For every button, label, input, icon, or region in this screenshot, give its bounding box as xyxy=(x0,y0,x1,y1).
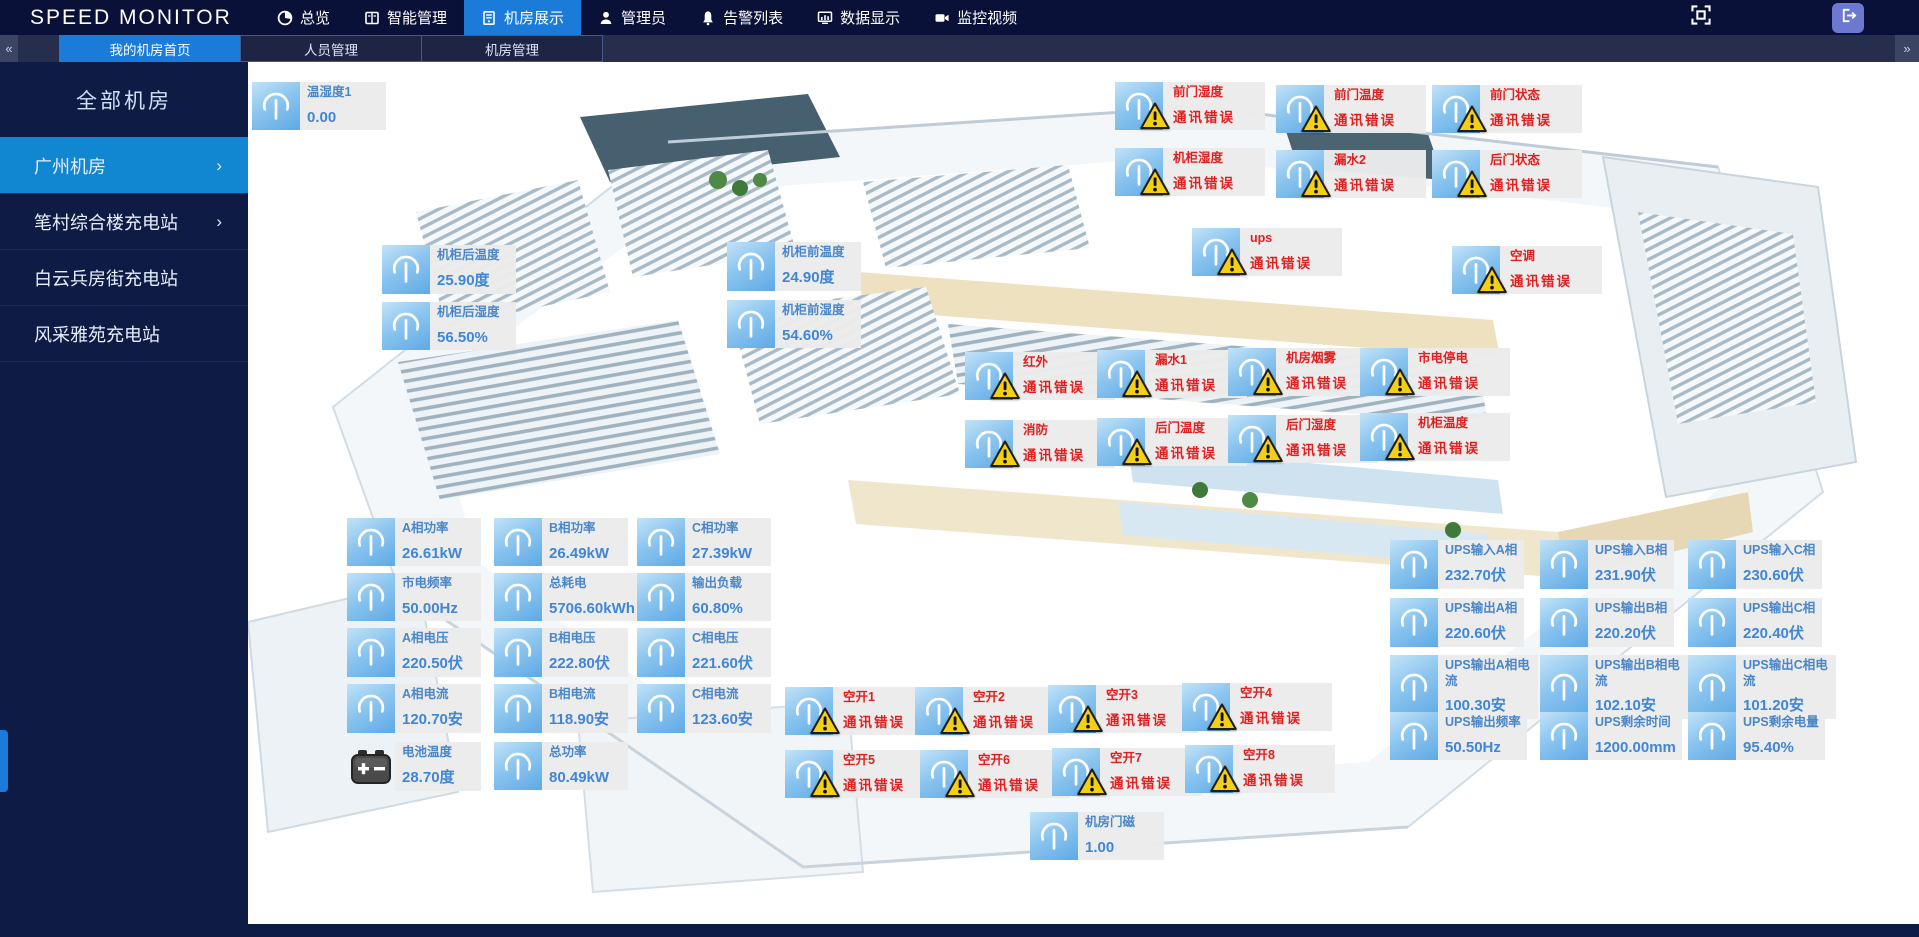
sensor-badge-body: 前门温度通讯错误 xyxy=(1324,85,1426,133)
tab-label: 我的机房首页 xyxy=(110,39,191,59)
fullscreen-icon xyxy=(1690,4,1712,31)
sidebar-item-label: 广州机房 xyxy=(34,153,106,179)
sensor-value: 1200.00mm xyxy=(1595,739,1676,756)
sensor-value: 1.00 xyxy=(1085,839,1158,856)
data-display-icon xyxy=(817,10,833,26)
warning-icon xyxy=(1477,266,1507,293)
topbar-right xyxy=(1688,0,1919,35)
sensor-badge[interactable]: 输出负载60.80% xyxy=(637,573,771,621)
sensor-badge-body: A相电压220.50伏 xyxy=(395,628,481,677)
sensor-badge-body: UPS剩余时间1200.00mm xyxy=(1588,712,1682,760)
sensor-badge-body: UPS输出C相220.40伏 xyxy=(1736,598,1822,647)
gauge-icon xyxy=(1390,540,1438,589)
nav-item-data-display[interactable]: 数据显示 xyxy=(800,0,917,35)
admin-icon xyxy=(598,10,614,26)
warning-icon xyxy=(1217,248,1247,275)
gauge-icon xyxy=(494,628,542,677)
top-bar: SPEED MONITOR 总览智能管理机房展示管理员告警列表数据显示监控视频 xyxy=(0,0,1919,35)
chevron-right-icon: » xyxy=(1903,41,1910,56)
sensor-badge[interactable]: B相功率26.49kW xyxy=(494,518,628,566)
warning-icon xyxy=(945,770,975,797)
sensor-badge[interactable]: UPS输入A相232.70伏 xyxy=(1390,540,1524,589)
nav-item-admin[interactable]: 管理员 xyxy=(581,0,683,35)
gauge-icon xyxy=(1360,348,1408,396)
sensor-label: 空开3 xyxy=(1106,688,1192,704)
gauge-icon xyxy=(1048,685,1096,733)
nav-item-smart-management[interactable]: 智能管理 xyxy=(347,0,464,35)
warning-icon xyxy=(1457,105,1487,132)
gauge-icon xyxy=(347,684,395,733)
floorplan-area: 温湿度10.00机柜后温度25.90度机柜后湿度56.50%机柜前温度24.90… xyxy=(248,62,1919,924)
warning-icon xyxy=(990,372,1020,399)
sensor-badge-body: 机柜湿度通讯错误 xyxy=(1163,148,1265,196)
gauge-icon xyxy=(1228,415,1276,463)
sensor-status: 通讯错误 xyxy=(1510,270,1596,290)
sensor-status: 通讯错误 xyxy=(1334,174,1420,194)
warning-icon xyxy=(1122,438,1152,465)
sensor-label: 空开8 xyxy=(1243,748,1329,764)
tab-label: 人员管理 xyxy=(304,39,358,59)
sensor-status: 通讯错误 xyxy=(1418,437,1504,457)
sensor-badge-body: UPS剩余电量95.40% xyxy=(1736,712,1825,760)
sensor-label: C相电流 xyxy=(692,687,765,703)
sensor-value: 220.50伏 xyxy=(402,652,475,673)
gauge-icon xyxy=(347,573,395,621)
sensor-label: 前门状态 xyxy=(1490,88,1576,104)
gauge-icon xyxy=(637,628,685,677)
sensor-badge[interactable]: 机柜后湿度56.50% xyxy=(382,302,516,350)
sensor-status: 通讯错误 xyxy=(973,711,1059,731)
sensor-label: B相功率 xyxy=(549,521,622,537)
sensor-label: UPS输入B相 xyxy=(1595,543,1668,559)
gauge-icon xyxy=(494,518,542,566)
topnav-menu: 总览智能管理机房展示管理员告警列表数据显示监控视频 xyxy=(260,0,1034,35)
sensor-badge[interactable]: A相电压220.50伏 xyxy=(347,628,481,677)
gauge-icon xyxy=(1182,683,1230,731)
sensor-label: 空开4 xyxy=(1240,686,1326,702)
chevron-right-icon: › xyxy=(216,156,222,176)
sensor-badge-body: UPS输出频率50.50Hz xyxy=(1438,712,1527,760)
sensor-label: 空开2 xyxy=(973,690,1059,706)
sensor-value: 26.61kW xyxy=(402,545,475,562)
tab-label: 机房管理 xyxy=(485,39,539,59)
sensor-badge-body: 总功率80.49kW xyxy=(542,742,628,790)
gauge-icon xyxy=(1688,712,1736,760)
sensor-badge-error[interactable]: 空开5通讯错误 xyxy=(785,750,935,798)
sensor-label: 总耗电 xyxy=(549,576,635,592)
sensor-status: 通讯错误 xyxy=(843,774,929,794)
sensor-label: 市电频率 xyxy=(402,576,475,592)
tabs: 我的机房首页人员管理机房管理 xyxy=(60,35,603,62)
sensor-badge[interactable]: B相电流118.90安 xyxy=(494,684,628,733)
sensor-label: 机柜温度 xyxy=(1418,416,1504,432)
warning-icon xyxy=(1140,168,1170,195)
sensor-status: 通讯错误 xyxy=(1490,109,1576,129)
sensor-badge-body: A相电流120.70安 xyxy=(395,684,481,733)
gauge-icon xyxy=(1052,748,1100,796)
gauge-icon xyxy=(1390,712,1438,760)
sensor-badge-body: UPS输入B相231.90伏 xyxy=(1588,540,1674,589)
sensor-badge-body: 空调通讯错误 xyxy=(1500,246,1602,294)
gauge-icon xyxy=(785,750,833,798)
gauge-icon xyxy=(1097,350,1145,398)
sensor-badge-body: B相电流118.90安 xyxy=(542,684,628,733)
sensor-badge-body: B相功率26.49kW xyxy=(542,518,628,566)
sensor-label: 机房门磁 xyxy=(1085,815,1158,831)
sensor-badge-error[interactable]: 后门状态通讯错误 xyxy=(1432,150,1582,198)
sensor-badge[interactable]: 电池温度28.70度 xyxy=(347,742,481,791)
sensor-label: UPS输入C相 xyxy=(1743,543,1816,559)
sensor-badge[interactable]: C相电压221.60伏 xyxy=(637,628,771,677)
sensor-value: 25.90度 xyxy=(437,269,510,290)
sensor-badge-body: C相电压221.60伏 xyxy=(685,628,771,677)
gauge-icon xyxy=(1540,655,1588,719)
sensor-label: 机柜湿度 xyxy=(1173,151,1259,167)
battery-icon xyxy=(347,742,395,791)
sensor-badge-error[interactable]: 市电停电通讯错误 xyxy=(1360,348,1510,396)
sensor-badge[interactable]: UPS输出B相220.20伏 xyxy=(1540,598,1674,647)
gauge-icon xyxy=(637,573,685,621)
gauge-icon xyxy=(494,742,542,790)
gauge-icon xyxy=(1540,712,1588,760)
sensor-badge-error[interactable]: 机柜湿度通讯错误 xyxy=(1115,148,1265,196)
sensor-badge-error[interactable]: 红外通讯错误 xyxy=(965,352,1115,400)
sensor-label: UPS剩余时间 xyxy=(1595,715,1676,731)
sensor-label: 市电停电 xyxy=(1418,351,1504,367)
sensor-badge-body: 总耗电5706.60kWh xyxy=(542,573,641,621)
sensor-value: 232.70伏 xyxy=(1445,564,1518,585)
overview-icon xyxy=(277,10,293,26)
warning-icon xyxy=(1122,370,1152,397)
sensor-badge-body: UPS输出C相电流101.20安 xyxy=(1736,655,1836,719)
gauge-icon xyxy=(637,518,685,566)
warning-icon xyxy=(1210,765,1240,792)
sensor-label: 总功率 xyxy=(549,745,622,761)
sensor-badge[interactable]: A相功率26.61kW xyxy=(347,518,481,566)
sensor-badge[interactable]: UPS输出A相220.60伏 xyxy=(1390,598,1524,647)
sensor-badge-body: 机柜前湿度54.60% xyxy=(775,300,861,348)
gauge-icon xyxy=(1390,655,1438,719)
gauge-icon xyxy=(785,687,833,735)
warning-icon xyxy=(1207,703,1237,730)
sidebar-item-label: 风采雅苑充电站 xyxy=(34,321,160,347)
sensor-status: 通讯错误 xyxy=(1106,709,1192,729)
gauge-icon xyxy=(637,684,685,733)
sensor-value: 54.60% xyxy=(782,327,855,344)
sensor-label: 漏水2 xyxy=(1334,153,1420,169)
sensor-value: 120.70安 xyxy=(402,708,475,729)
sensor-badge[interactable]: C相电流123.60安 xyxy=(637,684,771,733)
sensor-badge-error[interactable]: 前门湿度通讯错误 xyxy=(1115,82,1265,130)
sensor-badge[interactable]: 总功率80.49kW xyxy=(494,742,628,790)
sidebar-items: 广州机房›笔村综合楼充电站›白云兵房街充电站风采雅苑充电站 xyxy=(0,137,248,362)
nav-item-label: 总览 xyxy=(300,7,330,28)
video-monitor-icon xyxy=(934,10,950,26)
sensor-label: 输出负载 xyxy=(692,576,765,592)
warning-icon xyxy=(990,440,1020,467)
sensor-label: 前门湿度 xyxy=(1173,85,1259,101)
sensor-badge-error[interactable]: 消防通讯错误 xyxy=(965,420,1115,468)
gauge-icon xyxy=(1185,745,1233,793)
sensor-value: 222.80伏 xyxy=(549,652,622,673)
sensor-badge-error[interactable]: 漏水2通讯错误 xyxy=(1276,150,1426,198)
sensor-badge-body: C相电流123.60安 xyxy=(685,684,771,733)
sensor-value: 50.00Hz xyxy=(402,600,475,617)
sensor-label: ups xyxy=(1250,231,1336,247)
gauge-icon xyxy=(1452,246,1500,294)
nav-item-room-display[interactable]: 机房展示 xyxy=(464,0,581,35)
sensor-badge[interactable]: 温湿度10.00 xyxy=(252,82,386,130)
logout-button[interactable] xyxy=(1832,3,1864,33)
sensor-badge-body: 漏水2通讯错误 xyxy=(1324,150,1426,198)
gauge-icon xyxy=(915,687,963,735)
sidebar-item-3[interactable]: 风采雅苑充电站 xyxy=(0,305,248,362)
sensor-badge-body: 机柜温度通讯错误 xyxy=(1408,413,1510,461)
sensor-label: 空开5 xyxy=(843,753,929,769)
tab-bar: « 我的机房首页人员管理机房管理 » xyxy=(0,35,1919,62)
nav-item-video-monitor[interactable]: 监控视频 xyxy=(917,0,1034,35)
sensor-badge-error[interactable]: 前门温度通讯错误 xyxy=(1276,85,1426,133)
sensor-value: 220.20伏 xyxy=(1595,622,1668,643)
sidebar-edge-handle[interactable] xyxy=(0,730,8,792)
sensor-label: B相电流 xyxy=(549,687,622,703)
sensor-label: 前门温度 xyxy=(1334,88,1420,104)
sensor-badge-error[interactable]: 空开1通讯错误 xyxy=(785,687,935,735)
nav-item-overview[interactable]: 总览 xyxy=(260,0,347,35)
fullscreen-button[interactable] xyxy=(1688,5,1714,31)
tab-2[interactable]: 机房管理 xyxy=(421,35,603,62)
nav-item-label: 数据显示 xyxy=(840,7,900,28)
sensor-label: UPS输出B相 xyxy=(1595,601,1668,617)
sensor-badge-error[interactable]: 漏水1通讯错误 xyxy=(1097,350,1247,398)
sensor-badge-body: 市电频率50.00Hz xyxy=(395,573,481,621)
sensor-badge[interactable]: UPS输出C相电流101.20安 xyxy=(1688,655,1836,719)
sensor-label: 机柜前湿度 xyxy=(782,303,855,319)
nav-item-label: 告警列表 xyxy=(723,7,783,28)
sensor-label: UPS输出A相 xyxy=(1445,601,1518,617)
sensor-badge-body: 输出负载60.80% xyxy=(685,573,771,621)
sensor-badge-error[interactable]: 空开7通讯错误 xyxy=(1052,748,1202,796)
tabs-scroll-left[interactable]: « xyxy=(0,35,18,62)
sensor-badge-error[interactable]: 机房烟雾通讯错误 xyxy=(1228,348,1378,396)
chevron-left-icon: « xyxy=(5,41,12,56)
sensor-badge-error[interactable]: 空开8通讯错误 xyxy=(1185,745,1335,793)
sensor-value: 28.70度 xyxy=(402,766,475,787)
sensor-badge-body: 温湿度10.00 xyxy=(300,82,386,130)
sensor-label: UPS剩余电量 xyxy=(1743,715,1819,731)
sidebar-item-0[interactable]: 广州机房› xyxy=(0,137,248,194)
room-sidebar: 全部机房 广州机房›笔村综合楼充电站›白云兵房街充电站风采雅苑充电站 xyxy=(0,62,248,924)
tab-0[interactable]: 我的机房首页 xyxy=(59,35,241,62)
sensor-badge[interactable]: UPS输出B相电流102.10安 xyxy=(1540,655,1688,719)
gauge-icon xyxy=(1097,418,1145,466)
sensor-label: UPS输入A相 xyxy=(1445,543,1518,559)
sensor-badge-body: 市电停电通讯错误 xyxy=(1408,348,1510,396)
gauge-icon xyxy=(347,518,395,566)
gauge-icon xyxy=(1540,540,1588,589)
sensor-badge-error[interactable]: 前门状态通讯错误 xyxy=(1432,85,1582,133)
sensor-status: 通讯错误 xyxy=(1334,109,1420,129)
room-display-icon xyxy=(481,10,497,26)
sensor-label: UPS输出频率 xyxy=(1445,715,1521,731)
sensor-badge-error[interactable]: 机柜温度通讯错误 xyxy=(1360,413,1510,461)
bottom-bar xyxy=(0,924,1919,937)
sensor-value: 0.00 xyxy=(307,109,380,126)
warning-icon xyxy=(1253,435,1283,462)
sensor-label: UPS输出A相电流 xyxy=(1445,658,1532,689)
sensor-value: 50.50Hz xyxy=(1445,739,1521,756)
sensor-badge-error[interactable]: 后门湿度通讯错误 xyxy=(1228,415,1378,463)
tab-1[interactable]: 人员管理 xyxy=(240,35,422,62)
sensor-label: 机柜后温度 xyxy=(437,248,510,264)
warning-icon xyxy=(810,770,840,797)
sensor-badge[interactable]: A相电流120.70安 xyxy=(347,684,481,733)
gauge-icon xyxy=(494,684,542,733)
sensor-value: 230.60伏 xyxy=(1743,564,1816,585)
sidebar-item-1[interactable]: 笔村综合楼充电站› xyxy=(0,193,248,250)
sensor-badge[interactable]: UPS输出C相220.40伏 xyxy=(1688,598,1822,647)
gauge-icon xyxy=(1228,348,1276,396)
sensor-badge-error[interactable]: 空开2通讯错误 xyxy=(915,687,1065,735)
gauge-icon xyxy=(1115,148,1163,196)
sensor-label: A相功率 xyxy=(402,521,475,537)
sensor-badge[interactable]: C相功率27.39kW xyxy=(637,518,771,566)
sensor-badge[interactable]: UPS输入B相231.90伏 xyxy=(1540,540,1674,589)
sensor-status: 通讯错误 xyxy=(1240,707,1326,727)
sensor-badge[interactable]: 机柜前温度24.90度 xyxy=(727,242,861,291)
sensor-label: 电池温度 xyxy=(402,745,475,761)
warning-icon xyxy=(1140,102,1170,129)
warning-icon xyxy=(1301,170,1331,197)
sensor-value: 56.50% xyxy=(437,329,510,346)
sensor-badge-body: 机柜前温度24.90度 xyxy=(775,242,861,291)
sidebar-item-label: 笔村综合楼充电站 xyxy=(34,209,178,235)
sensor-label: C相功率 xyxy=(692,521,765,537)
sensor-badge[interactable]: UPS输出频率50.50Hz xyxy=(1390,712,1527,760)
sensor-value: 27.39kW xyxy=(692,545,765,562)
gauge-icon xyxy=(347,628,395,677)
sensor-status: 通讯错误 xyxy=(1173,172,1259,192)
sensor-badge-body: 机柜后湿度56.50% xyxy=(430,302,516,350)
sensor-badge-body: 电池温度28.70度 xyxy=(395,742,481,791)
sensor-label: 温湿度1 xyxy=(307,85,380,101)
sensor-badge-error[interactable]: 后门温度通讯错误 xyxy=(1097,418,1247,466)
sensor-status: 通讯错误 xyxy=(1110,772,1196,792)
sensor-status: 通讯错误 xyxy=(1250,252,1336,272)
sensor-badge-error[interactable]: ups通讯错误 xyxy=(1192,228,1342,276)
sensor-badge-body: UPS输出B相电流102.10安 xyxy=(1588,655,1688,719)
nav-item-label: 监控视频 xyxy=(957,7,1017,28)
gauge-icon xyxy=(965,420,1013,468)
sensor-badge-body: UPS输出A相220.60伏 xyxy=(1438,598,1524,647)
sidebar-item-2[interactable]: 白云兵房街充电站 xyxy=(0,249,248,306)
sensor-badge[interactable]: UPS输出A相电流100.30安 xyxy=(1390,655,1538,719)
sensor-label: A相电流 xyxy=(402,687,475,703)
gauge-icon xyxy=(1432,150,1480,198)
sensor-badge-body: 空开8通讯错误 xyxy=(1233,745,1335,793)
sensor-badge-error[interactable]: 空开6通讯错误 xyxy=(920,750,1070,798)
sensor-value: 5706.60kWh xyxy=(549,600,635,617)
sensor-value: 220.40伏 xyxy=(1743,622,1816,643)
alarm-list-icon xyxy=(700,10,716,26)
sensor-badge[interactable]: 市电频率50.00Hz xyxy=(347,573,481,621)
sensor-badge[interactable]: 机柜前湿度54.60% xyxy=(727,300,861,348)
sensor-badge-body: 前门状态通讯错误 xyxy=(1480,85,1582,133)
sensor-badge[interactable]: 机柜后温度25.90度 xyxy=(382,245,516,294)
sensor-label: 空调 xyxy=(1510,249,1596,265)
sensor-badge-error[interactable]: 空调通讯错误 xyxy=(1452,246,1602,294)
sensor-badge-body: UPS输入A相232.70伏 xyxy=(1438,540,1524,589)
sensor-label: UPS输出B相电流 xyxy=(1595,658,1682,689)
content: 全部机房 广州机房›笔村综合楼充电站›白云兵房街充电站风采雅苑充电站 xyxy=(0,62,1919,924)
sensor-value: 231.90伏 xyxy=(1595,564,1668,585)
logout-icon xyxy=(1839,6,1858,30)
sensor-badge-error[interactable]: 空开3通讯错误 xyxy=(1048,685,1198,733)
gauge-icon xyxy=(1192,228,1240,276)
sensor-badge[interactable]: UPS剩余电量95.40% xyxy=(1688,712,1825,760)
gauge-icon xyxy=(252,82,300,130)
nav-item-label: 管理员 xyxy=(621,7,666,28)
gauge-icon xyxy=(1688,598,1736,647)
sensor-badge-body: UPS输入C相230.60伏 xyxy=(1736,540,1822,589)
sensor-value: 118.90安 xyxy=(549,708,622,729)
warning-icon xyxy=(1385,368,1415,395)
sensor-label: 机柜前温度 xyxy=(782,245,855,261)
sensor-value: 221.60伏 xyxy=(692,652,765,673)
nav-item-label: 机房展示 xyxy=(504,7,564,28)
sensor-value: 80.49kW xyxy=(549,769,622,786)
sensor-status: 通讯错误 xyxy=(1243,769,1329,789)
sensor-label: 机柜后湿度 xyxy=(437,305,510,321)
gauge-icon xyxy=(1030,812,1078,860)
sensor-badge[interactable]: B相电压222.80伏 xyxy=(494,628,628,677)
sensor-badge[interactable]: UPS输入C相230.60伏 xyxy=(1688,540,1822,589)
tabs-scroll-right[interactable]: » xyxy=(1895,35,1919,62)
sensor-badge[interactable]: 机房门磁1.00 xyxy=(1030,812,1164,860)
nav-item-label: 智能管理 xyxy=(387,7,447,28)
warning-icon xyxy=(810,707,840,734)
gauge-icon xyxy=(1115,82,1163,130)
gauge-icon xyxy=(1540,598,1588,647)
sensor-badge-body: C相功率27.39kW xyxy=(685,518,771,566)
sensor-badge-body: ups通讯错误 xyxy=(1240,228,1342,276)
sensor-label: 后门状态 xyxy=(1490,153,1576,169)
gauge-icon xyxy=(965,352,1013,400)
sensor-badge-body: UPS输出A相电流100.30安 xyxy=(1438,655,1538,719)
nav-item-alarm-list[interactable]: 告警列表 xyxy=(683,0,800,35)
sensor-status: 通讯错误 xyxy=(1173,106,1259,126)
sensor-badge[interactable]: UPS剩余时间1200.00mm xyxy=(1540,712,1682,760)
sensor-label: UPS输出C相 xyxy=(1743,601,1816,617)
sensor-badge[interactable]: 总耗电5706.60kWh xyxy=(494,573,641,621)
chevron-right-icon: › xyxy=(216,212,222,232)
warning-icon xyxy=(940,707,970,734)
sensor-badge-body: B相电压222.80伏 xyxy=(542,628,628,677)
warning-icon xyxy=(1253,368,1283,395)
gauge-icon xyxy=(1360,413,1408,461)
sensor-label: B相电压 xyxy=(549,631,622,647)
gauge-icon xyxy=(382,302,430,350)
warning-icon xyxy=(1457,170,1487,197)
sensor-label: UPS输出C相电流 xyxy=(1743,658,1830,689)
gauge-icon xyxy=(1276,150,1324,198)
sensor-value: 220.60伏 xyxy=(1445,622,1518,643)
sidebar-header: 全部机房 xyxy=(0,62,248,138)
warning-icon xyxy=(1385,433,1415,460)
sensor-badge-error[interactable]: 空开4通讯错误 xyxy=(1182,683,1332,731)
gauge-icon xyxy=(920,750,968,798)
sensor-value: 123.60安 xyxy=(692,708,765,729)
